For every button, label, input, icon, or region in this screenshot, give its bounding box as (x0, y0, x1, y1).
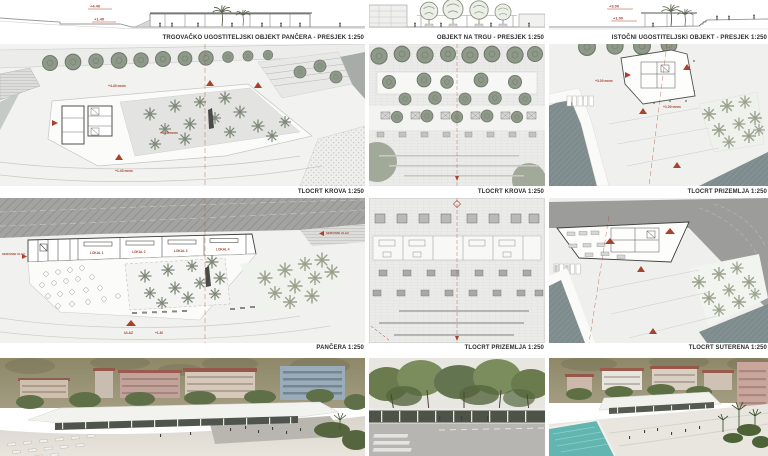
caption-plan-pancera: PANČERA 1:250 (316, 345, 364, 351)
elev-label: +4.40 mnm (160, 131, 178, 135)
prizemlje-trg-plan-drawing (369, 198, 545, 343)
pavilion-band (369, 411, 545, 423)
panel-plan-pancera: LOKAL 1 LOKAL 2 LOKAL 3 LOKAL 4 (0, 198, 365, 352)
istocni-section-drawing: +3.00 +1.00 (549, 0, 768, 33)
render-east-pool (549, 358, 768, 456)
pancera-section-drawing: +4.40 +1.40 (0, 0, 365, 33)
panel-plan-prizemlje-istocni: +3.00 mnm +1.00 mnm TLOCRT PRIZEMLJA 1:2… (549, 44, 768, 196)
caption-plan-krov-pancera: TLOCRT KROVA 1:250 (298, 189, 364, 195)
caption-plan-prizemlje-trg: TLOCRT PRIZEMLJA 1:250 (465, 345, 544, 351)
presentation-board: +4.40 +1.40 TRGOVAČKO UGOSTITELJSKI OBJE… (0, 0, 768, 456)
elev-label: +4.40 mnm (108, 84, 126, 88)
panel-plan-krov-pancera: +4.40 mnm +4.40 mnm +1.40 mnm TLOCRT KRO… (0, 44, 365, 196)
elev-label: +3.00 (609, 4, 620, 9)
elev-label: +1.40 (155, 331, 163, 335)
panel-section-pancera: +4.40 +1.40 TRGOVAČKO UGOSTITELJSKI OBJE… (0, 0, 365, 42)
room-label: LOKAL 1 (90, 251, 104, 255)
panel-plan-suterena: TLOCRT SUTERENA 1:250 (549, 198, 768, 352)
entry-label: SERVISNI ULAZ (326, 231, 349, 235)
room-label: LOKAL 4 (216, 248, 230, 252)
krov-pancera-plan-drawing: +4.40 mnm +4.40 mnm +1.40 mnm (0, 44, 365, 186)
pancera-plan-drawing: LOKAL 1 LOKAL 2 LOKAL 3 LOKAL 4 (0, 198, 365, 343)
room-label: LOKAL 2 (132, 250, 146, 254)
render-trg-street (369, 358, 545, 456)
prizemlje-istocni-plan-drawing: +3.00 mnm +1.00 mnm (549, 44, 768, 186)
render-trg-image (369, 358, 545, 456)
render-pancera-aerial (0, 358, 365, 456)
caption-plan-suterena: TLOCRT SUTERENA 1:250 (689, 345, 767, 351)
entry-label: ULAZ (124, 331, 133, 335)
panel-section-trg: OBJEKT NA TRGU - PRESJEK 1:250 (369, 0, 545, 42)
render-east-image (549, 358, 768, 456)
elev-label: +1.00 mnm (663, 105, 681, 109)
parking-stalls (567, 96, 593, 106)
elev-label: +1.40 (94, 17, 105, 22)
suterena-plan-drawing (549, 198, 768, 343)
caption-plan-prizemlje-istocni: TLOCRT PRIZEMLJA 1:250 (688, 189, 767, 195)
elev-label: +1.40 mnm (115, 169, 133, 173)
elev-label: +4.40 (90, 4, 101, 9)
room-label: LOKAL 3 (174, 249, 188, 253)
panel-plan-krov-trg: TLOCRT KROVA 1:250 (369, 44, 545, 196)
trg-section-drawing (369, 0, 545, 33)
caption-section-pancera: TRGOVAČKO UGOSTITELJSKI OBJEKT PANČERA -… (163, 35, 364, 41)
elev-label: +1.00 (613, 16, 624, 21)
render-pancera-image (0, 358, 365, 456)
panel-section-istocni: +3.00 +1.00 ISTOČNI UGOSTITELJSKI OBJEKT… (549, 0, 768, 42)
caption-section-istocni: ISTOČNI UGOSTITELJSKI OBJEKT - PRESJEK 1… (612, 35, 767, 41)
entry-label: SERVISNI ULAZ (2, 252, 25, 256)
krov-trg-plan-drawing (369, 44, 545, 186)
panel-plan-prizemlje-trg: TLOCRT PRIZEMLJA 1:250 (369, 198, 545, 352)
elev-label: +3.00 mnm (595, 79, 613, 83)
caption-section-trg: OBJEKT NA TRGU - PRESJEK 1:250 (437, 35, 544, 41)
caption-plan-krov-trg: TLOCRT KROVA 1:250 (478, 189, 544, 195)
